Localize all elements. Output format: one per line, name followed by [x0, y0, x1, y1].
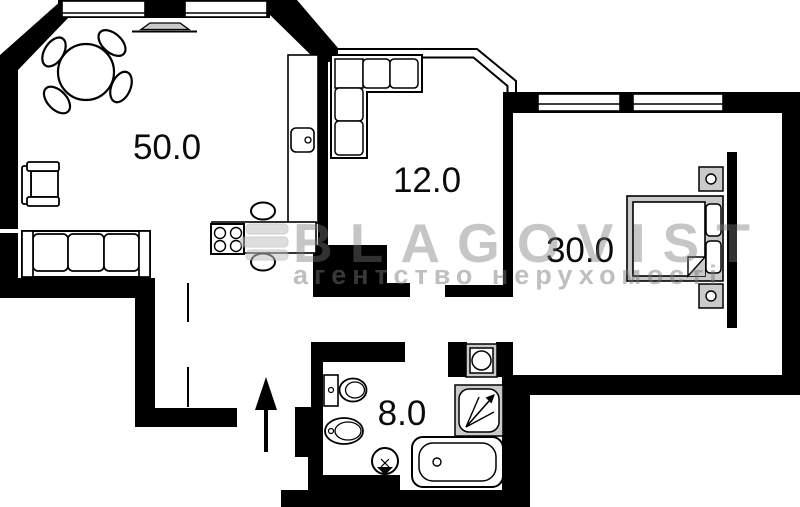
floor-plan-svg: 50.0 12.0 30.0 8.0 BLAGOVIST агентство н…	[0, 0, 800, 507]
dining-table	[58, 44, 114, 100]
room-label-living: 50.0	[133, 128, 201, 167]
room-label-room12: 12.0	[393, 161, 461, 200]
nightstand-knob	[706, 291, 716, 301]
washbasin	[372, 448, 398, 475]
window	[62, 1, 145, 17]
wall-right	[782, 92, 800, 395]
stove-burner	[215, 228, 226, 239]
sofa	[22, 231, 150, 277]
blagovist-logo-icon	[240, 224, 288, 260]
wall-living-bottom	[0, 278, 155, 298]
wall-washer-niche	[448, 342, 467, 377]
wall-washer-right	[496, 342, 513, 377]
corner-sofa	[331, 55, 422, 158]
wall-bedroom-bottom	[503, 375, 800, 395]
armchair	[22, 162, 59, 206]
bathtub	[412, 437, 503, 487]
window	[185, 1, 267, 17]
room-label-bathroom: 8.0	[378, 394, 427, 433]
wall-joint-notch	[0, 229, 18, 233]
window	[538, 94, 620, 111]
floor-plan: 50.0 12.0 30.0 8.0 BLAGOVIST агентство н…	[0, 0, 800, 507]
bar-stool	[251, 203, 275, 220]
dining-table-group	[37, 25, 136, 118]
wall-left	[0, 55, 18, 298]
nightstand-knob	[706, 174, 716, 184]
bidet	[325, 418, 363, 444]
sink-drain	[305, 137, 311, 143]
wall-vent	[132, 23, 197, 32]
toilet	[324, 375, 367, 406]
wall-hall-bottom	[135, 408, 237, 427]
wall-hall-left	[135, 278, 155, 427]
watermark: BLAGOVIST агентство нерухомості	[240, 212, 767, 290]
entrance-arrow-icon	[255, 377, 277, 452]
stove-burner	[231, 228, 242, 239]
watermark-tagline: агентство нерухомості	[293, 260, 723, 290]
shower-cabin	[455, 385, 503, 436]
stove-burner	[215, 241, 226, 252]
wall-bath-top	[311, 342, 405, 362]
washing-machine	[466, 344, 497, 377]
wall-bottom-band	[281, 490, 530, 507]
window	[633, 94, 723, 111]
wall-bath-step1	[295, 407, 323, 457]
wall-bath-right	[502, 377, 530, 507]
